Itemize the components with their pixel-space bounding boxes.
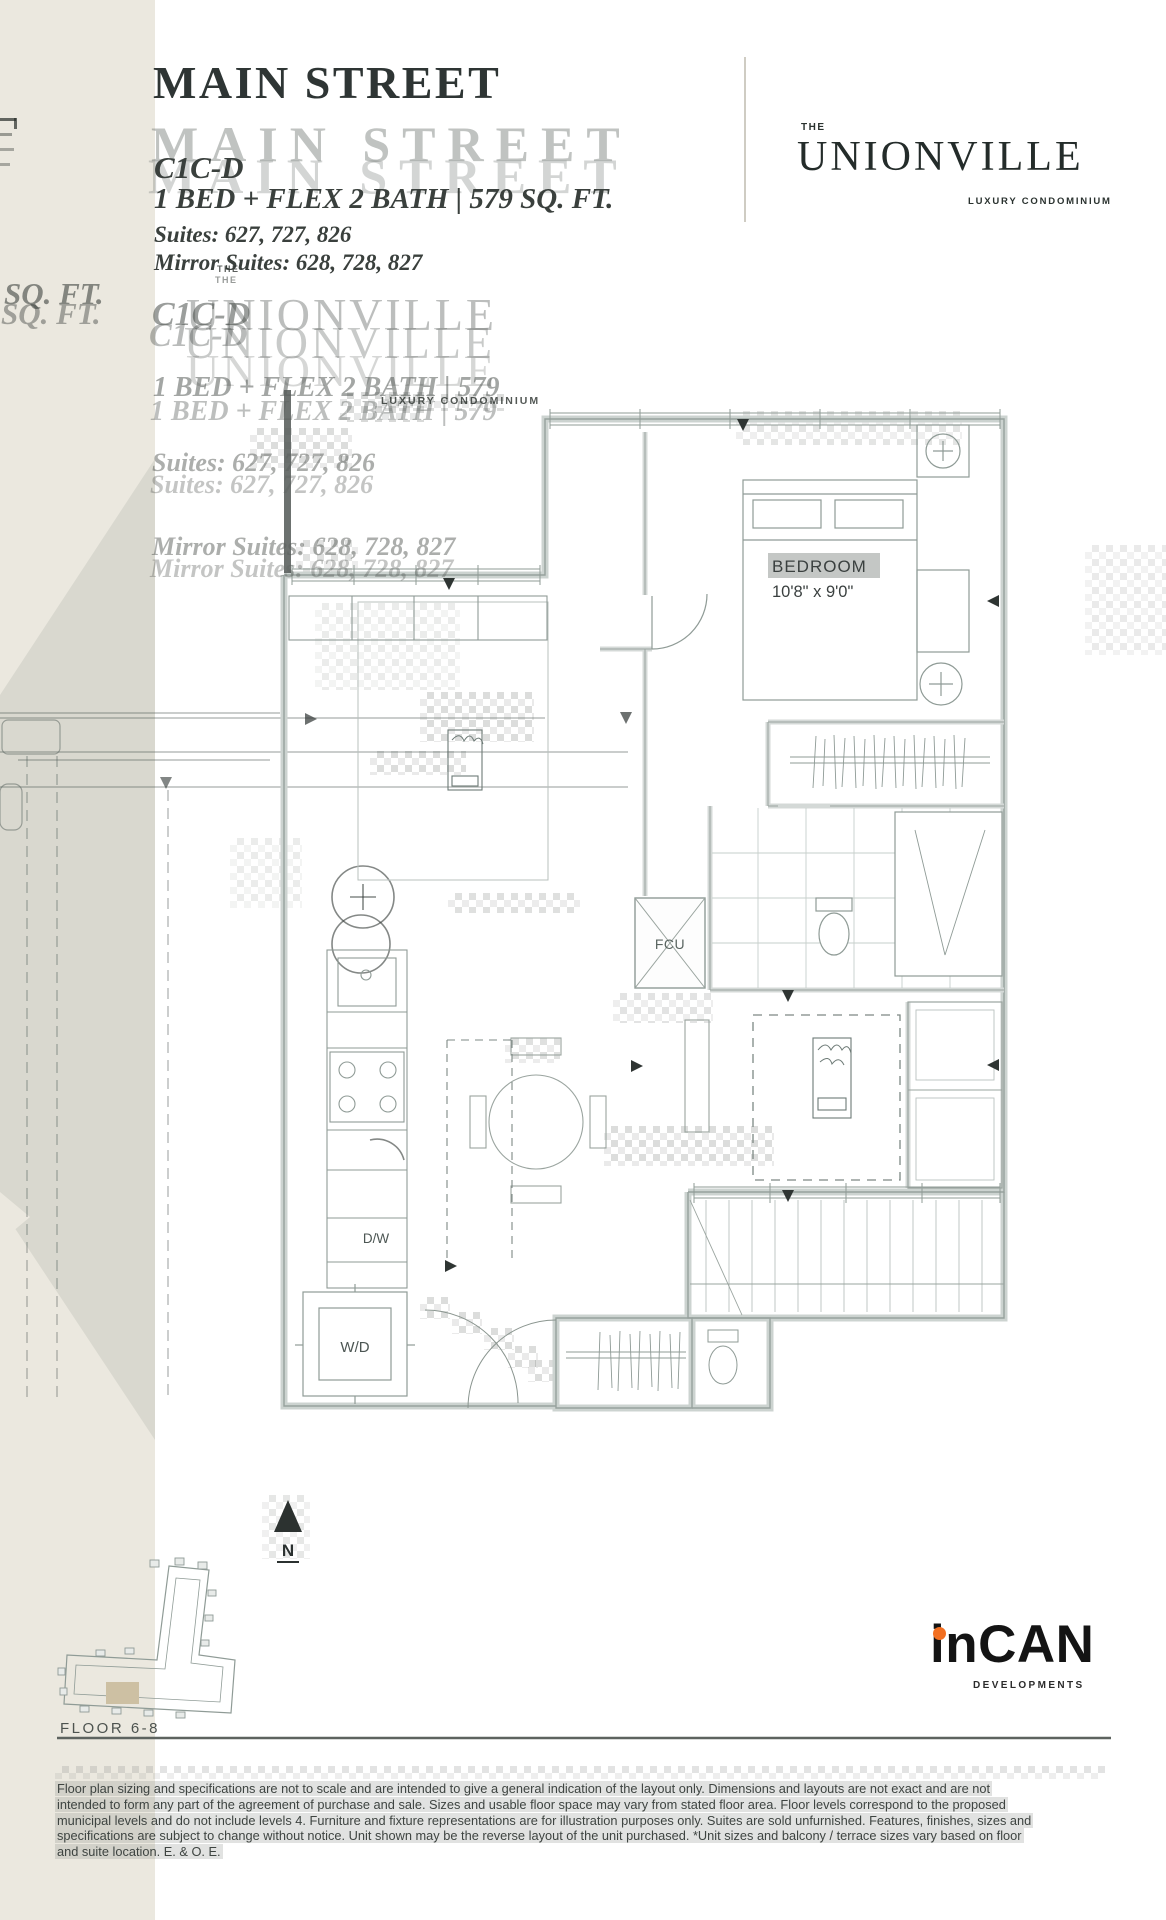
bath-fixtures (816, 812, 1002, 976)
keyplan (58, 1558, 235, 1718)
disclaimer-line: Floor plan sizing and specifications are… (55, 1781, 1115, 1797)
developer-logo: inCAN DEVELOPMENTS (930, 1618, 1130, 1680)
incan-dot-icon (933, 1627, 946, 1640)
keyplan-floor-label: FLOOR 6-8 (60, 1720, 160, 1737)
north-label: N (282, 1541, 294, 1560)
north-compass: N (274, 1500, 302, 1562)
flex-room (685, 1002, 1002, 1188)
fcu-label: FCU (655, 936, 685, 952)
bedroom-label: BEDROOM (772, 557, 867, 576)
dining-table (470, 1038, 606, 1203)
disclaimer-line: specifications are subject to change wit… (55, 1828, 1115, 1844)
header-divider (744, 57, 746, 222)
ghost-mirror-suites-list: Mirror Suites: 628, 728, 827 (150, 554, 453, 584)
dishwasher-label: D/W (363, 1231, 390, 1246)
keyplan-unit-highlight (106, 1682, 139, 1704)
suites-list: Suites: 627, 727, 826 (154, 222, 351, 248)
ghost-suites-list: Suites: 627, 727, 826 (150, 470, 373, 500)
disclaimer: Floor plan sizing and specifications are… (55, 1781, 1115, 1860)
washer-dryer-label: W/D (340, 1339, 369, 1356)
ghost-plan-code: C1C-D (149, 317, 247, 355)
kitchen: D/W (289, 596, 547, 1288)
disclaimer-line: municipal levels and do not include leve… (55, 1813, 1115, 1829)
brand-the: THE (801, 122, 826, 133)
mirror-suites-list: Mirror Suites: 628, 728, 827 (154, 250, 422, 276)
north-arrow-icon (274, 1500, 302, 1532)
ghost-plan-lines (0, 713, 628, 1400)
ghost-brand-the: THE (215, 275, 238, 285)
den-dashed-boundary (447, 1040, 512, 1258)
living-area (358, 602, 548, 880)
artifact-vertical-bar (284, 390, 291, 573)
developer-subtitle: DEVELOPMENTS (973, 1680, 1085, 1691)
floorplan-page: FCU (0, 0, 1166, 1920)
entry-closet (566, 1330, 738, 1391)
plan-specs: 1 BED + FLEX 2 BATH | 579 SQ. FT. (154, 183, 613, 216)
entry-door-swings (425, 1310, 556, 1408)
disclaimer-line: intended to form any part of the agreeme… (55, 1797, 1115, 1813)
disclaimer-line: and suite location. E. & O. E. (55, 1844, 1115, 1860)
page-title: MAIN STREET (153, 56, 501, 109)
ghost-brand-the: THE (217, 264, 240, 274)
bedroom-label-group: BEDROOM 10'8" x 9'0" (768, 553, 880, 601)
bedroom-dimensions: 10'8" x 9'0" (772, 583, 853, 601)
brand-wordmark: UNIONVILLE (797, 133, 1084, 181)
ghost-sqft-text: SQ. FT. (1, 296, 101, 332)
balcony (690, 1200, 1004, 1315)
developer-name: inCAN (930, 1618, 1094, 1671)
brand-tagline: LUXURY CONDOMINIUM (968, 196, 1112, 207)
ghost-brand-tagline: LUXURY CONDOMINIUM (381, 395, 540, 407)
bedroom-closet (790, 735, 990, 789)
fcu-shaft: FCU (635, 898, 705, 988)
interior-walls (600, 432, 1004, 1188)
ghost-fixture-circles (332, 866, 404, 1160)
laundry-closet: W/D (295, 1284, 415, 1404)
plan-code: C1C-D (154, 150, 244, 186)
